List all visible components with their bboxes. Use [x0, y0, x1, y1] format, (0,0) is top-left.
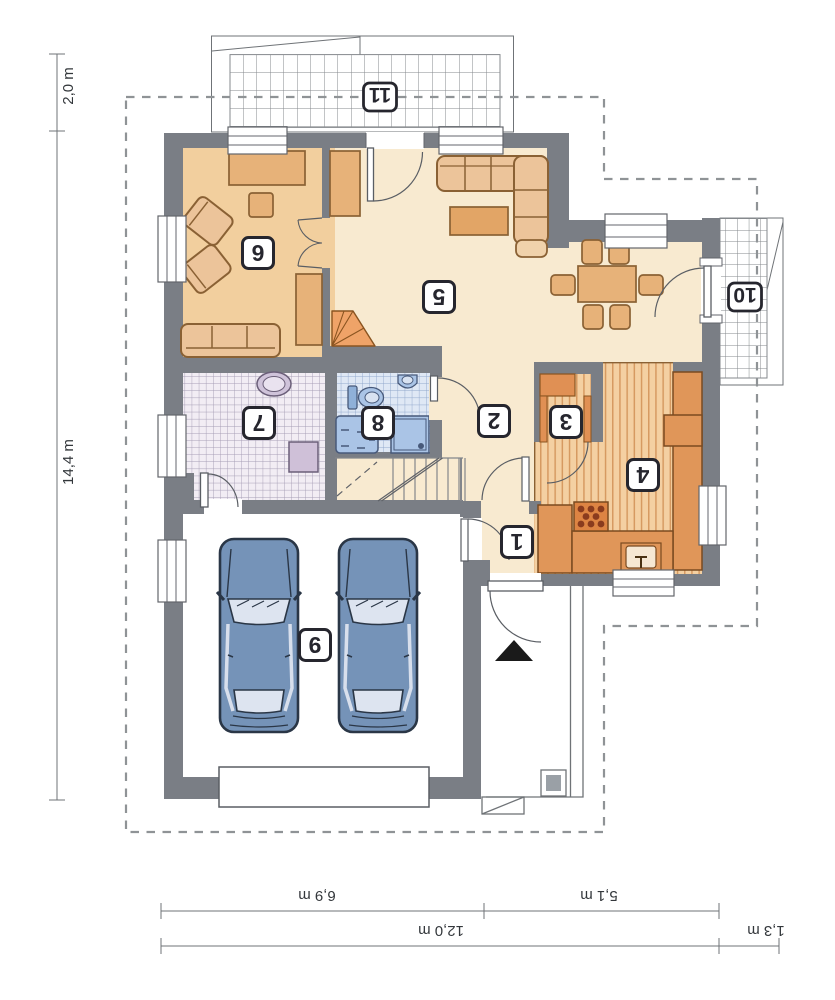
svg-text:3: 3	[560, 409, 573, 435]
svg-text:12,0 m: 12,0 m	[418, 922, 464, 939]
svg-text:1: 1	[510, 529, 523, 555]
svg-text:9: 9	[309, 632, 322, 658]
svg-text:7: 7	[253, 410, 266, 436]
svg-text:11: 11	[369, 83, 392, 106]
svg-text:5: 5	[432, 284, 445, 310]
svg-text:8: 8	[371, 410, 384, 436]
svg-text:2,0 m: 2,0 m	[60, 67, 77, 105]
svg-text:14,4 m: 14,4 m	[60, 439, 77, 485]
svg-text:5,1 m: 5,1 m	[580, 887, 618, 904]
svg-text:10: 10	[733, 283, 756, 306]
svg-text:6: 6	[252, 240, 265, 266]
svg-text:2: 2	[488, 408, 501, 434]
svg-text:4: 4	[636, 462, 649, 488]
svg-text:6,9 m: 6,9 m	[298, 887, 336, 904]
svg-text:1,3 m: 1,3 m	[747, 922, 785, 939]
